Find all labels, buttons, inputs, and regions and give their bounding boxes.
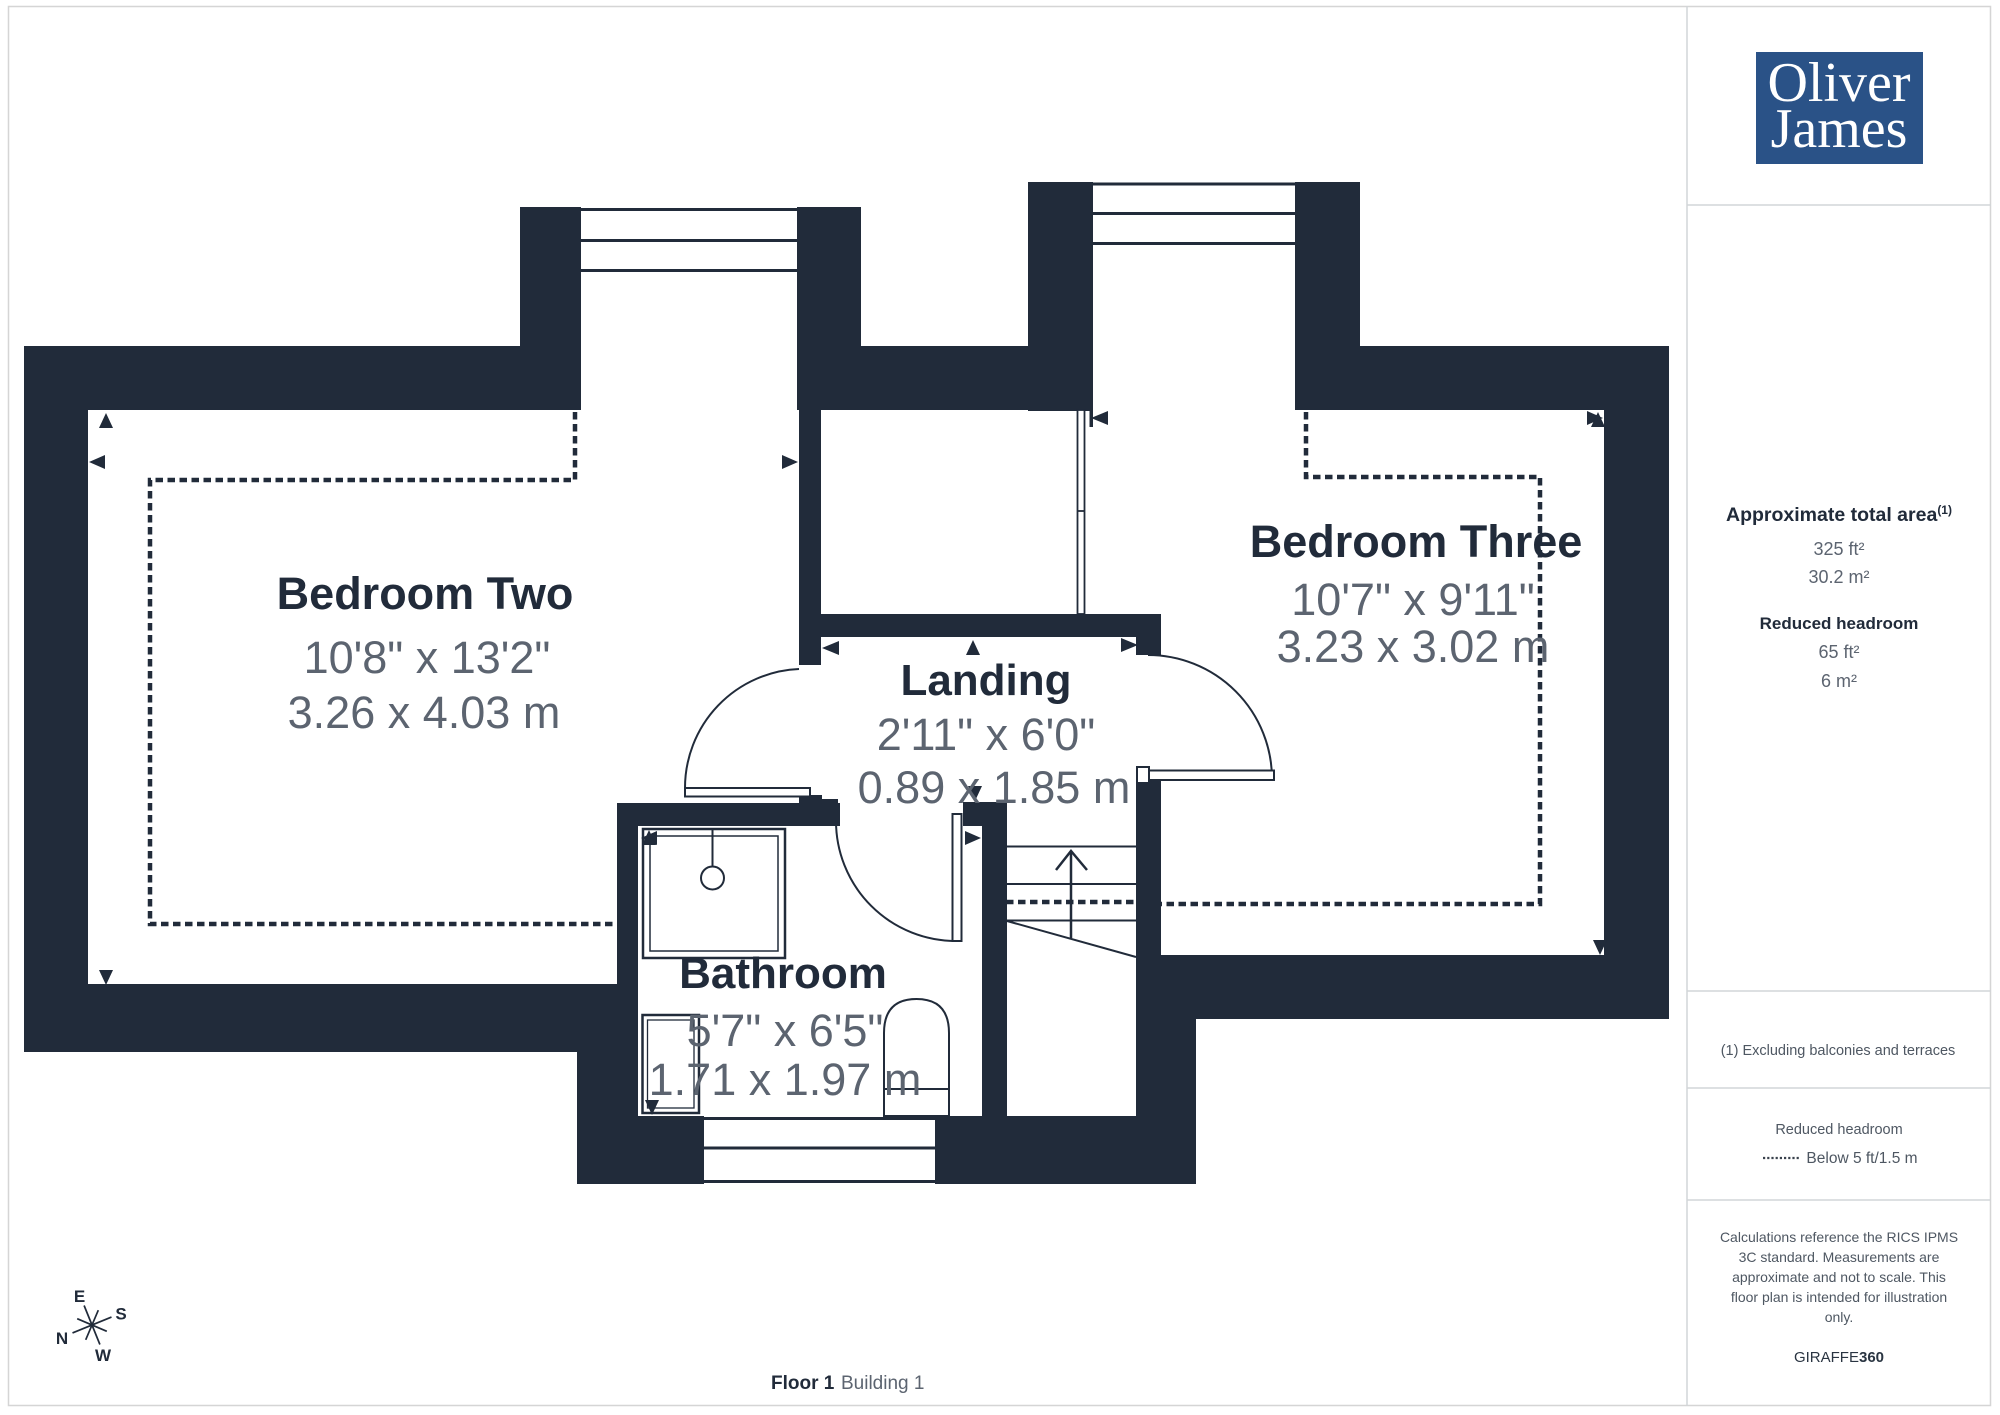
svg-text:E: E xyxy=(74,1287,85,1306)
svg-text:Floor 1: Floor 1 xyxy=(771,1373,835,1394)
svg-text:(1) Excluding balconies and te: (1) Excluding balconies and terraces xyxy=(1721,1043,1956,1059)
svg-text:2'11" x 6'0": 2'11" x 6'0" xyxy=(877,709,1095,760)
svg-text:10'7" x 9'11": 10'7" x 9'11" xyxy=(1291,574,1534,625)
svg-text:Below 5 ft/1.5 m: Below 5 ft/1.5 m xyxy=(1806,1150,1917,1167)
svg-text:Building 1: Building 1 xyxy=(841,1373,924,1394)
svg-text:approximate and not to scale.: approximate and not to scale. This xyxy=(1732,1269,1946,1285)
svg-text:3C standard. Measurements are: 3C standard. Measurements are xyxy=(1739,1249,1940,1265)
svg-text:Bedroom Three: Bedroom Three xyxy=(1250,516,1583,567)
svg-text:325 ft²: 325 ft² xyxy=(1813,539,1864,559)
svg-text:3.26 x 4.03 m: 3.26 x 4.03 m xyxy=(288,687,561,738)
svg-text:Reduced headroom: Reduced headroom xyxy=(1760,614,1919,633)
svg-text:30.2 m²: 30.2 m² xyxy=(1808,567,1869,587)
svg-text:3.23 x 3.02 m: 3.23 x 3.02 m xyxy=(1277,621,1550,672)
svg-text:W: W xyxy=(95,1346,112,1365)
svg-text:James: James xyxy=(1771,98,1908,160)
svg-text:S: S xyxy=(115,1305,126,1324)
svg-text:Bedroom Two: Bedroom Two xyxy=(277,568,574,619)
svg-text:Bathroom: Bathroom xyxy=(679,949,887,998)
svg-text:GIRAFFE360: GIRAFFE360 xyxy=(1794,1349,1884,1366)
svg-text:Landing: Landing xyxy=(900,656,1071,705)
svg-text:5'7" x 6'5": 5'7" x 6'5" xyxy=(687,1005,884,1056)
svg-text:Approximate total area(1): Approximate total area(1) xyxy=(1726,503,1952,526)
svg-text:65 ft²: 65 ft² xyxy=(1818,642,1859,662)
svg-text:Calculations reference the RIC: Calculations reference the RICS IPMS xyxy=(1720,1229,1958,1245)
svg-text:N: N xyxy=(56,1329,68,1348)
svg-text:1.71 x 1.97 m: 1.71 x 1.97 m xyxy=(649,1054,922,1105)
svg-text:floor plan is intended for ill: floor plan is intended for illustration xyxy=(1731,1289,1947,1305)
svg-text:Reduced headroom: Reduced headroom xyxy=(1775,1122,1902,1138)
svg-text:10'8" x 13'2": 10'8" x 13'2" xyxy=(304,632,551,683)
svg-text:0.89 x 1.85 m: 0.89 x 1.85 m xyxy=(858,762,1131,813)
svg-text:6 m²: 6 m² xyxy=(1821,671,1857,691)
svg-text:only.: only. xyxy=(1825,1309,1854,1325)
